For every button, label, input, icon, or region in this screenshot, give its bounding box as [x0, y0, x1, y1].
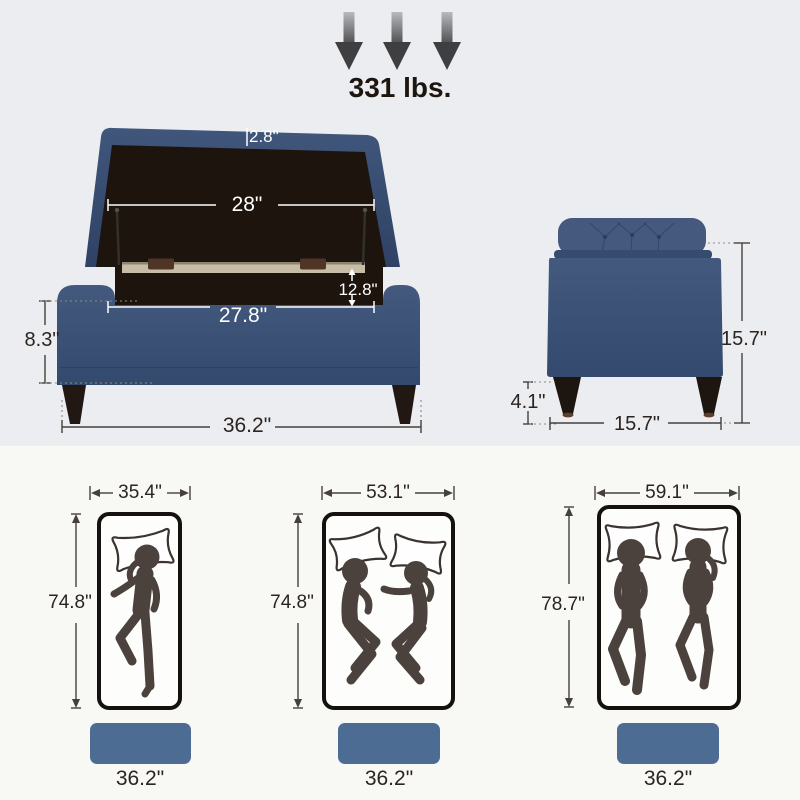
width-arrow-right-icon	[415, 486, 455, 500]
rod-cap	[115, 208, 119, 212]
mattress-length-label: 74.8"	[42, 592, 98, 614]
sleeper-scene-icon	[601, 509, 737, 706]
sleeper-scene-icon	[326, 516, 451, 706]
mattress-outline-twin	[97, 512, 182, 710]
side-depth-label: 15.7"	[606, 413, 668, 436]
leg-foot-tip	[704, 413, 715, 418]
down-arrow-icon	[383, 12, 411, 70]
footprint-width-label: 36.2"	[628, 767, 708, 791]
tuft-button	[657, 235, 661, 239]
mattress-outline-full	[322, 512, 455, 710]
mattress-width-dimension: 59.1"	[591, 485, 743, 501]
ottoman-footprint	[338, 723, 440, 764]
base-height-label: 8.3"	[14, 329, 70, 352]
lid-width-label: 28"	[197, 193, 297, 217]
hinge-icon	[300, 259, 326, 270]
mattress-width-label: 35.4"	[118, 482, 162, 504]
mattress-width-dimension: 35.4"	[86, 485, 194, 501]
ottoman-front-view-illustration	[20, 115, 460, 435]
sleeper-figure-icon	[384, 561, 431, 680]
hinge-icon	[148, 259, 174, 270]
overall-width-label: 36.2"	[197, 414, 297, 438]
ottoman-footprint	[617, 723, 719, 764]
weight-capacity-label: 331 lbs.	[330, 72, 470, 104]
width-arrow-right-icon	[694, 486, 740, 500]
ottoman-leg	[553, 377, 581, 414]
interior-width-label: 27.8"	[193, 304, 293, 328]
weight-capacity-arrows-icon	[332, 10, 462, 72]
rod-cap	[363, 208, 367, 212]
width-arrow-left-icon	[321, 486, 361, 500]
mattress-outline-queen	[597, 505, 741, 710]
down-arrow-icon	[433, 12, 461, 70]
sleeper-figure-icon	[613, 539, 645, 690]
ottoman-dimensions-section: 331 lbs.	[0, 0, 800, 446]
tuft-button	[630, 233, 634, 237]
ottoman-footprint	[90, 723, 191, 764]
ottoman-leg	[62, 385, 86, 424]
down-arrow-icon	[335, 12, 363, 70]
sleeper-figure-icon	[342, 558, 376, 680]
width-arrow-left-icon	[89, 486, 113, 500]
ottoman-leg	[696, 377, 722, 414]
mattress-length-label: 74.8"	[264, 592, 320, 614]
leg-foot-tip	[563, 413, 574, 418]
mattress-width-label: 59.1"	[645, 482, 689, 504]
mattress-width-dimension: 53.1"	[318, 485, 458, 501]
side-body	[547, 258, 723, 377]
product-dimension-diagram: 331 lbs.	[0, 0, 800, 800]
width-arrow-right-icon	[167, 486, 191, 500]
interior-depth-label: 12.8"	[329, 280, 387, 300]
footprint-width-label: 36.2"	[100, 767, 180, 791]
sleeper-figure-icon	[680, 538, 715, 685]
tuft-button	[603, 235, 607, 239]
sleeper-scene-icon	[101, 516, 178, 706]
side-lid-edge	[554, 250, 712, 259]
mattress-width-label: 53.1"	[366, 482, 410, 504]
ottoman-leg	[392, 385, 416, 424]
footprint-width-label: 36.2"	[349, 767, 429, 791]
base-seam	[60, 367, 418, 368]
width-arrow-left-icon	[594, 486, 640, 500]
mattress-comparison-section: 35.4" 74.8"	[0, 446, 800, 800]
mattress-length-label: 78.7"	[535, 594, 591, 616]
side-height-label: 15.7"	[714, 328, 774, 351]
lid-thickness-label: 2.8"	[249, 127, 279, 147]
side-leg-height-label: 4.1"	[500, 391, 556, 414]
